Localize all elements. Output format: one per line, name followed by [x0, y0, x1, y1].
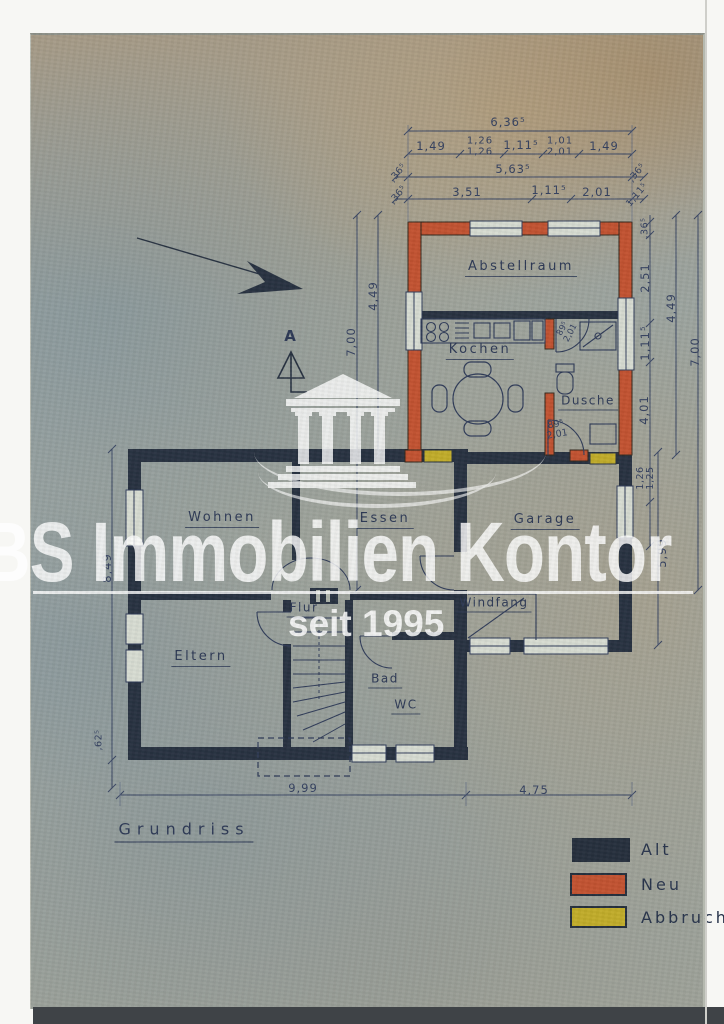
dim-annex-right-outer: 7,00: [688, 337, 702, 367]
room-label-eltern: Eltern: [171, 649, 230, 667]
scan-edge-line: [705, 0, 707, 1024]
dim-top4-4: 2,01: [582, 185, 612, 199]
dim-annex-left-outer: 7,00: [344, 327, 358, 357]
logo-pediment-icon: [294, 374, 392, 398]
room-label-flur: Flur: [287, 601, 322, 618]
dim-top4-2: 3,51: [452, 185, 482, 199]
dim-annex-right-mid: 4,49: [664, 293, 678, 323]
room-label-essen: Essen: [357, 511, 414, 529]
room-label-garage: Garage: [511, 512, 580, 530]
dim-top2-5: 1,49: [589, 139, 619, 153]
legend-swatch-alt: [572, 838, 630, 862]
dim-top4-3: 1,11⁵: [531, 183, 566, 197]
room-label-kochen: Kochen: [446, 342, 514, 360]
dim-top3-2: 5,63⁵: [495, 162, 530, 176]
dim-top2-3: 1,11⁵: [503, 138, 538, 152]
room-label-bad: Bad: [368, 672, 402, 689]
dim-house-left-small: ,62⁵: [94, 730, 105, 751]
legend-label-alt: Alt: [641, 840, 672, 859]
room-label-dusche: Dusche: [558, 394, 618, 411]
room-label-abstellraum: Abstellraum: [465, 259, 577, 277]
stairs: [293, 618, 345, 742]
scanned-floor-plan-page: Abstellraum Kochen Dusche Wohnen Essen G…: [0, 0, 724, 1024]
dim-garage-right: 5,99: [655, 538, 669, 568]
dim-annex-right-5: 1,26 1,25: [636, 466, 656, 489]
dim-bottom-garage: 4,75: [519, 783, 549, 797]
dim-annex-right-4: 4,01: [637, 395, 651, 425]
door-size-lower: 89⁵ 2,01: [544, 418, 568, 442]
dim-top2-4: 1,01 2,01: [547, 137, 573, 158]
north-arrow: [137, 238, 303, 294]
dim-top2-2: 1,26 1,26: [467, 137, 493, 158]
dim-house-left: 8,49: [100, 553, 114, 583]
dim-annex-left-inner: 4,49: [366, 281, 380, 311]
legend-label-abbruch: Abbruch: [641, 908, 724, 927]
room-label-wc: WC: [391, 698, 420, 715]
legend-swatch-abbruch: [570, 906, 627, 928]
legend-swatch-neu: [570, 873, 627, 896]
room-label-wohnen: Wohnen: [185, 510, 259, 528]
dim-annex-right-1: ,36⁵: [640, 218, 651, 239]
section-marker-label: A: [284, 327, 296, 345]
dim-bottom-main: 9,99: [288, 781, 318, 795]
scan-bottom-bar: [33, 1007, 724, 1024]
dim-top-total: 6,36⁵: [490, 115, 525, 129]
room-label-windfang: Windfang: [457, 596, 532, 613]
dim-top2-1: 1,49: [416, 139, 446, 153]
dim-annex-right-2: 2,51: [638, 263, 652, 293]
kitchen-counter: [421, 319, 545, 343]
dim-annex-right-3: 1,11⁵: [638, 325, 652, 360]
logo-arc: [258, 436, 496, 508]
legend-label-neu: Neu: [641, 875, 682, 894]
plan-title: Grundriss: [114, 820, 253, 843]
